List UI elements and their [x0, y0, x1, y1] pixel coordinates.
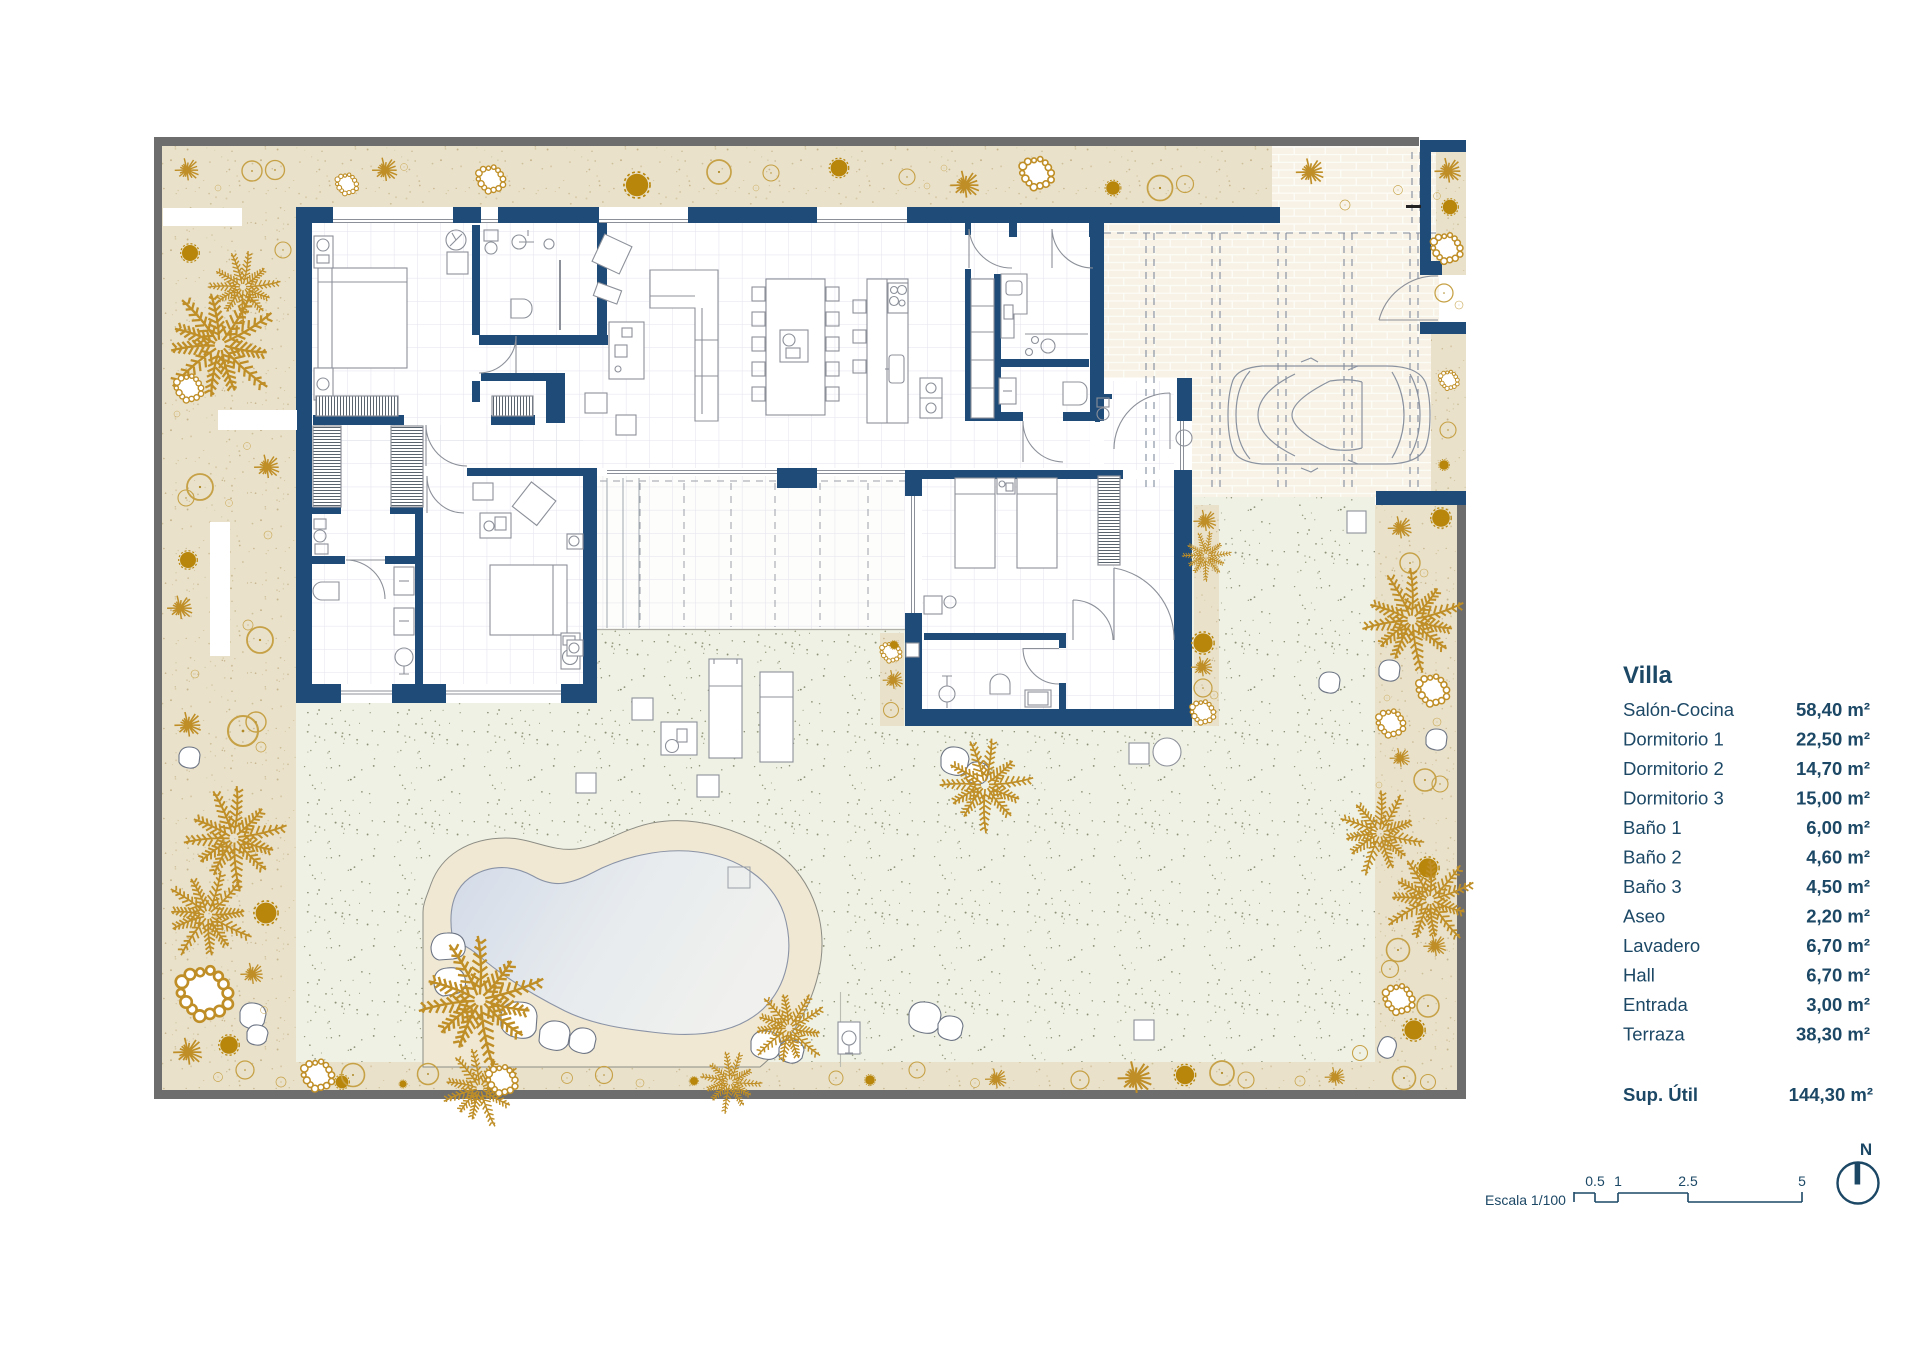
- svg-text:3,00 m²: 3,00 m²: [1806, 994, 1870, 1015]
- svg-text:15,00 m²: 15,00 m²: [1796, 788, 1870, 809]
- svg-text:Sup. Útil: Sup. Útil: [1623, 1084, 1698, 1105]
- svg-text:38,30 m²: 38,30 m²: [1796, 1024, 1870, 1045]
- svg-text:Dormitorio 2: Dormitorio 2: [1623, 758, 1724, 779]
- svg-text:2.5: 2.5: [1678, 1173, 1698, 1189]
- svg-text:14,70 m²: 14,70 m²: [1796, 758, 1870, 779]
- svg-text:6,70 m²: 6,70 m²: [1806, 935, 1870, 956]
- svg-text:144,30 m²: 144,30 m²: [1789, 1084, 1873, 1105]
- svg-text:Entrada: Entrada: [1623, 994, 1689, 1015]
- svg-text:6,70 m²: 6,70 m²: [1806, 965, 1870, 986]
- svg-text:58,40 m²: 58,40 m²: [1796, 699, 1870, 720]
- svg-text:Villa: Villa: [1623, 662, 1673, 689]
- svg-text:Baño 3: Baño 3: [1623, 876, 1682, 897]
- svg-text:22,50 m²: 22,50 m²: [1796, 729, 1870, 750]
- svg-text:Escala 1/100: Escala 1/100: [1485, 1192, 1566, 1208]
- svg-text:N: N: [1860, 1140, 1872, 1159]
- svg-text:0.5: 0.5: [1585, 1173, 1605, 1189]
- svg-text:1: 1: [1614, 1173, 1622, 1189]
- svg-text:Baño 2: Baño 2: [1623, 847, 1682, 868]
- svg-text:6,00 m²: 6,00 m²: [1806, 817, 1870, 838]
- svg-text:2,20 m²: 2,20 m²: [1806, 906, 1870, 927]
- svg-text:Lavadero: Lavadero: [1623, 935, 1700, 956]
- svg-text:4,50 m²: 4,50 m²: [1806, 876, 1870, 897]
- svg-text:Hall: Hall: [1623, 965, 1655, 986]
- svg-text:5: 5: [1798, 1173, 1806, 1189]
- svg-text:Dormitorio 1: Dormitorio 1: [1623, 729, 1724, 750]
- svg-text:Dormitorio 3: Dormitorio 3: [1623, 788, 1724, 809]
- svg-text:Aseo: Aseo: [1623, 906, 1665, 927]
- svg-text:Salón-Cocina: Salón-Cocina: [1623, 699, 1735, 720]
- svg-text:Baño 1: Baño 1: [1623, 817, 1682, 838]
- svg-text:Terraza: Terraza: [1623, 1024, 1685, 1045]
- svg-text:4,60 m²: 4,60 m²: [1806, 847, 1870, 868]
